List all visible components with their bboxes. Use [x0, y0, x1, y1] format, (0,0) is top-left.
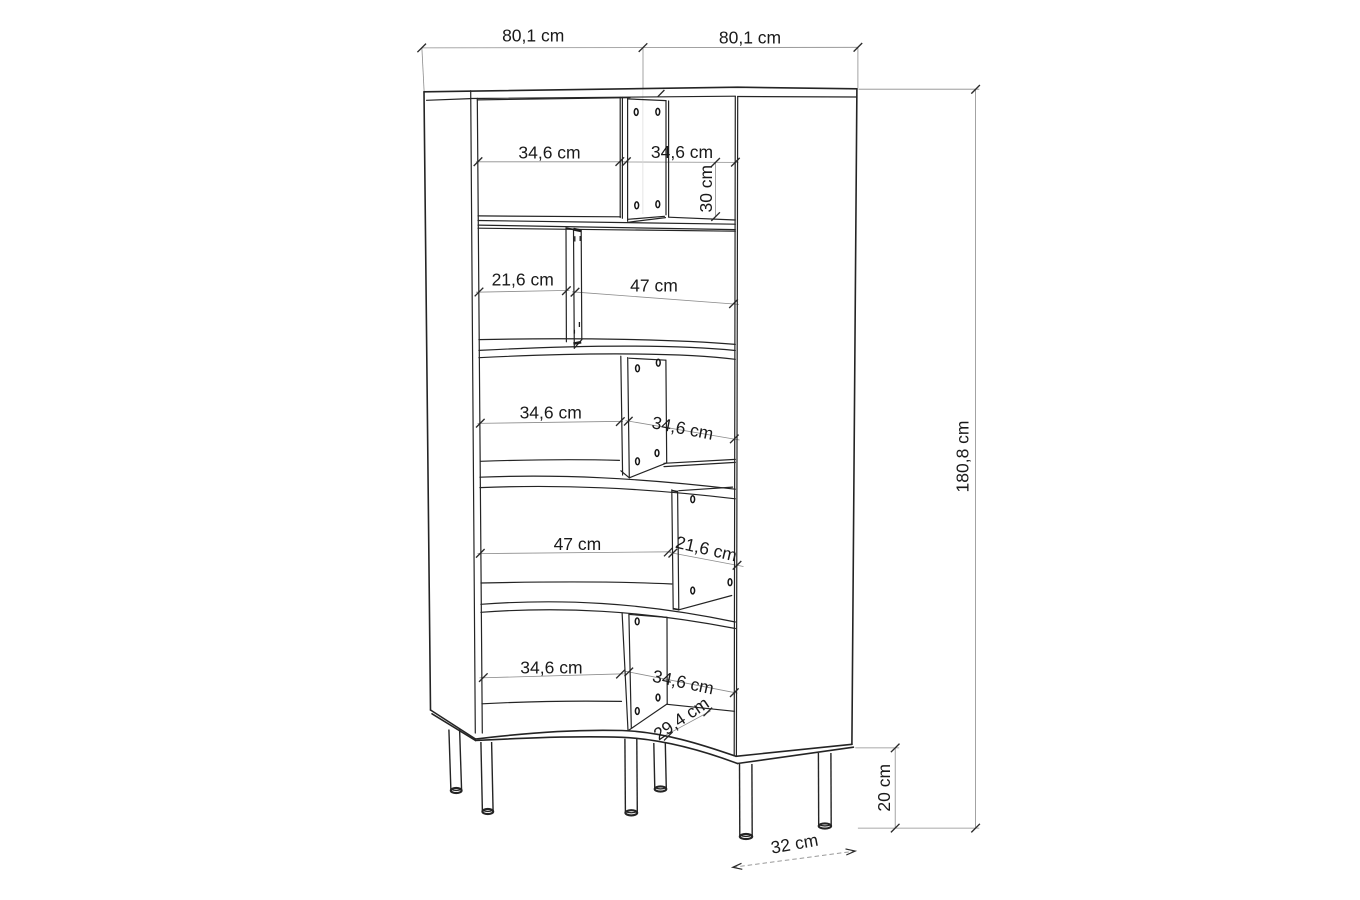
svg-text:34,6 cm: 34,6 cm: [520, 403, 582, 423]
svg-text:47 cm: 47 cm: [554, 534, 602, 554]
svg-text:34,6 cm: 34,6 cm: [651, 142, 713, 162]
svg-text:30 cm: 30 cm: [696, 165, 716, 213]
svg-text:34,6 cm: 34,6 cm: [518, 142, 580, 162]
svg-text:80,1 cm: 80,1 cm: [502, 26, 564, 46]
svg-text:34,6 cm: 34,6 cm: [520, 658, 582, 678]
svg-text:180,8 cm: 180,8 cm: [953, 421, 973, 493]
svg-text:47 cm: 47 cm: [630, 275, 678, 295]
svg-text:20 cm: 20 cm: [874, 764, 894, 812]
svg-text:80,1 cm: 80,1 cm: [719, 27, 781, 47]
svg-text:21,6 cm: 21,6 cm: [492, 270, 554, 290]
